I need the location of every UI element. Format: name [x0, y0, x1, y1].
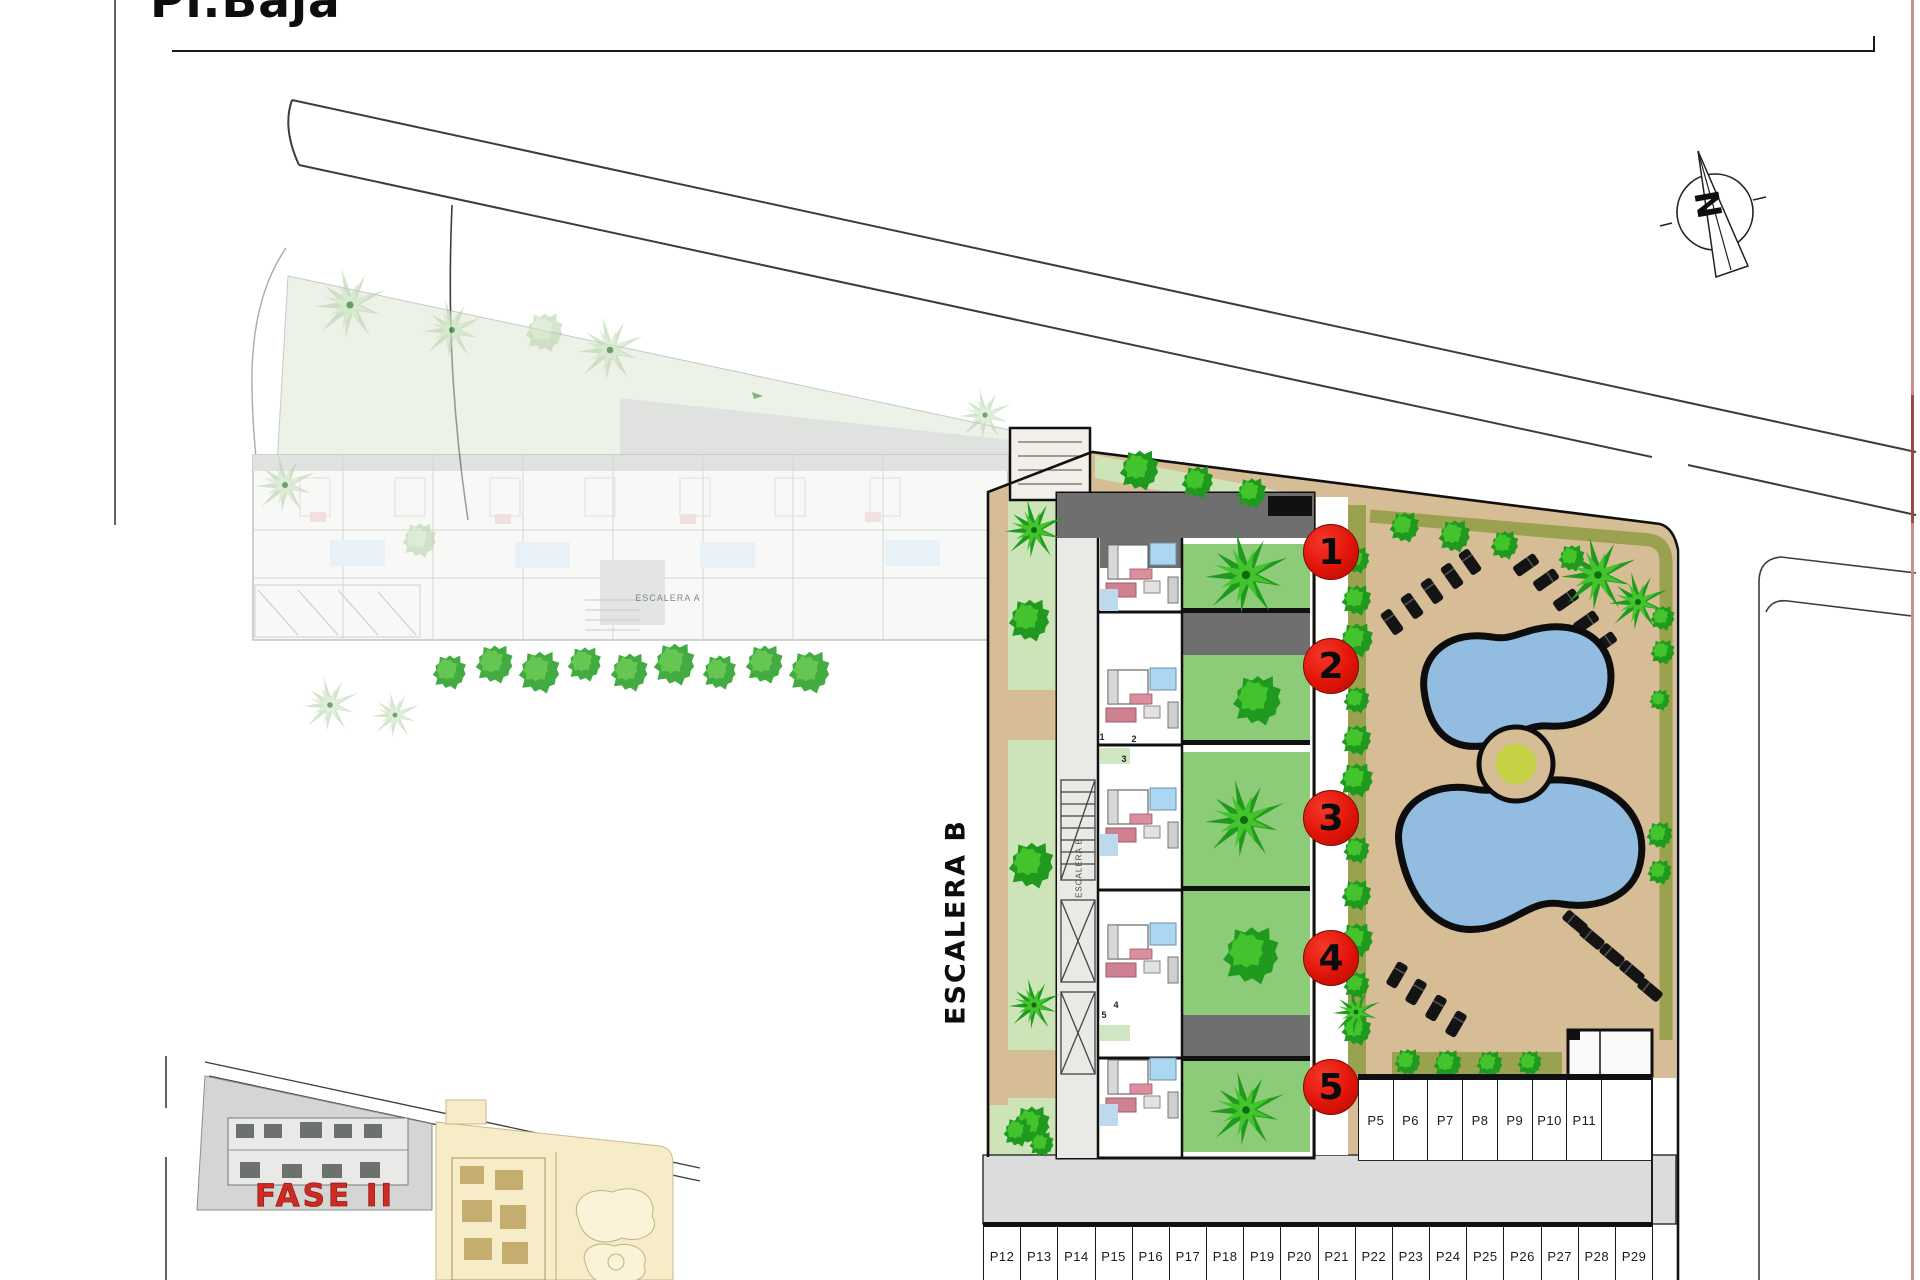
- unit-badge: 5: [1303, 1059, 1359, 1115]
- access-road: [983, 1155, 1676, 1224]
- palm-tree-icon: [282, 482, 288, 488]
- parking-space: P17: [1170, 1227, 1207, 1280]
- parking-space: P25: [1467, 1227, 1504, 1280]
- furniture-icon: [1130, 1084, 1152, 1094]
- furniture-icon: [1130, 569, 1152, 579]
- unit-badge: 1: [1303, 524, 1359, 580]
- parking-space: P12: [983, 1227, 1021, 1280]
- furniture-icon: [1144, 706, 1160, 718]
- parking-space: P5: [1358, 1080, 1394, 1161]
- door-number: 5: [1101, 1010, 1106, 1020]
- unit-badge: 2: [1303, 638, 1359, 694]
- furniture-icon: [1106, 708, 1136, 722]
- palm-tree-icon: [607, 347, 614, 354]
- hedge-row: [433, 644, 830, 694]
- furniture-icon: [1168, 1092, 1178, 1118]
- page-title: Pl.Baja: [150, 0, 341, 29]
- palm-tree-icon: [393, 713, 398, 718]
- door-number: 3: [1121, 754, 1126, 764]
- furniture-icon: [1108, 790, 1118, 824]
- site-plan-canvas: Pl.Baja ESCALERA B ESCALERA A ESCALERA B…: [0, 0, 1920, 1280]
- parking-space: P27: [1542, 1227, 1579, 1280]
- parking-row-lower: P12P13P14P15P16P17P18P19P20P21P22P23P24P…: [983, 1222, 1653, 1280]
- parking-space: P14: [1058, 1227, 1095, 1280]
- palm-tree-icon: [982, 412, 987, 417]
- furniture-icon: [1100, 589, 1118, 611]
- furniture-icon: [1106, 963, 1136, 977]
- parking-space-unlabeled: [1602, 1080, 1652, 1161]
- parking-space: P13: [1021, 1227, 1058, 1280]
- parking-space: P18: [1207, 1227, 1244, 1280]
- palm-tree-icon: [1354, 1010, 1359, 1015]
- furniture-icon: [1150, 668, 1176, 690]
- palm-tree-icon: [1242, 1106, 1250, 1114]
- door-number: 2: [1131, 734, 1136, 744]
- escalera-b-label: ESCALERA B: [941, 819, 972, 1025]
- parking-space: P11: [1567, 1080, 1602, 1161]
- palm-tree-icon: [346, 301, 353, 308]
- parking-space: P23: [1393, 1227, 1430, 1280]
- palm-tree-icon: [1594, 571, 1602, 579]
- furniture-icon: [1108, 670, 1118, 704]
- furniture-icon: [1150, 788, 1176, 810]
- palm-tree-icon: [1031, 527, 1037, 533]
- furniture-icon: [1168, 702, 1178, 728]
- parking-space: P24: [1430, 1227, 1467, 1280]
- furniture-icon: [1150, 923, 1176, 945]
- escalera-a-small-label: ESCALERA A: [635, 593, 701, 603]
- palm-tree-icon: [327, 702, 333, 708]
- door-number: 4: [1113, 1000, 1118, 1010]
- furniture-icon: [1150, 1058, 1176, 1080]
- furniture-icon: [1130, 814, 1152, 824]
- active-building: [1057, 493, 1314, 1158]
- parking-space: P15: [1096, 1227, 1133, 1280]
- unit-badge: 3: [1303, 790, 1359, 846]
- parking-space: P16: [1133, 1227, 1170, 1280]
- furniture-icon: [1168, 957, 1178, 983]
- parking-space: P7: [1428, 1080, 1463, 1161]
- furniture-icon: [1144, 826, 1160, 838]
- furniture-icon: [1150, 543, 1176, 565]
- parking-space: P21: [1319, 1227, 1356, 1280]
- furniture-icon: [1130, 694, 1152, 704]
- furniture-icon: [1100, 834, 1118, 856]
- parking-space: P26: [1504, 1227, 1541, 1280]
- inset-fase2-plan: [228, 1118, 408, 1185]
- palm-tree-icon: [449, 327, 455, 333]
- title-rule: [172, 50, 1875, 52]
- title-rule-end-tick: [1873, 36, 1875, 51]
- palm-tree-icon: [1240, 816, 1248, 824]
- parking-space: P29: [1616, 1227, 1653, 1280]
- palm-tree-icon: [1031, 1002, 1036, 1007]
- palm-tree-icon: [1635, 599, 1641, 605]
- parking-space: P6: [1394, 1080, 1429, 1161]
- parking-row-upper: P5P6P7P8P9P10P11: [1358, 1074, 1652, 1161]
- furniture-icon: [1108, 925, 1118, 959]
- parking-space: P20: [1281, 1227, 1318, 1280]
- furniture-icon: [1144, 1096, 1160, 1108]
- furniture-icon: [1100, 1104, 1118, 1126]
- escalera-b-small-label: ESCALERA B: [1075, 838, 1084, 898]
- furniture-icon: [1168, 822, 1178, 848]
- furniture-icon: [1130, 949, 1152, 959]
- parking-space: P10: [1533, 1080, 1568, 1161]
- door-number: 1: [1099, 732, 1104, 742]
- furniture-icon: [1168, 577, 1178, 603]
- palm-tree-icon: [1242, 571, 1250, 579]
- parking-space: P8: [1463, 1080, 1498, 1161]
- parking-space: P22: [1356, 1227, 1393, 1280]
- furniture-icon: [1108, 545, 1118, 579]
- unit-badge: 4: [1303, 930, 1359, 986]
- pool-utility-room: [1568, 1030, 1652, 1076]
- furniture-icon: [1144, 581, 1160, 593]
- parking-space: P19: [1244, 1227, 1281, 1280]
- furniture-icon: [1144, 961, 1160, 973]
- entrance-structure: [1010, 428, 1090, 500]
- fase-ii-label: FASE II: [255, 1178, 395, 1214]
- parking-space: P9: [1498, 1080, 1533, 1161]
- furniture-icon: [1108, 1060, 1118, 1094]
- page-edge-line: [1911, 0, 1914, 1280]
- faded-phase-area: [252, 248, 1010, 640]
- parking-space: P28: [1579, 1227, 1616, 1280]
